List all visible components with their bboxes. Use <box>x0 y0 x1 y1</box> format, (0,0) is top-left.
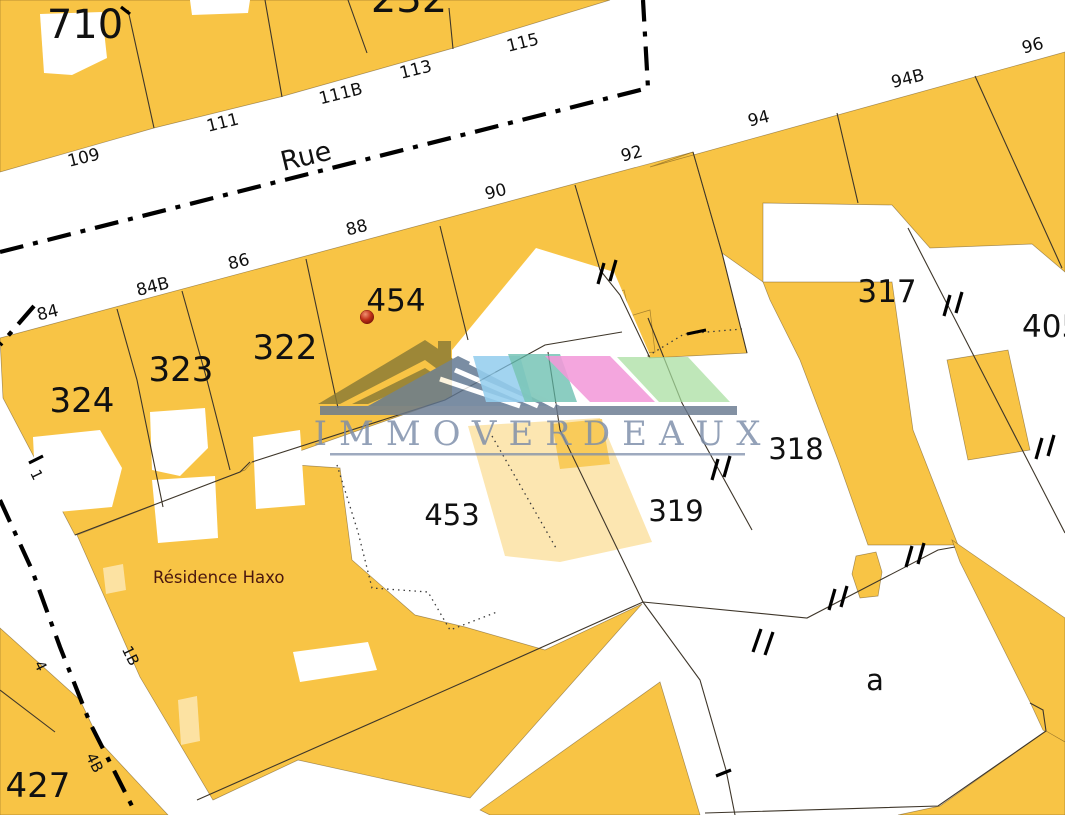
building-405 <box>947 350 1030 460</box>
watermark-text: IMMOVERDEAUX <box>314 414 773 454</box>
house-number-86: 86 <box>226 250 252 275</box>
parcel-block-right-street-corner <box>898 731 1065 815</box>
house-number-94b: 94B <box>889 65 926 92</box>
parcel-label-324: 324 <box>50 381 115 421</box>
parcel-label-427: 427 <box>6 766 71 806</box>
house-number-84: 84 <box>35 301 61 326</box>
parcel-label-232: 232 <box>371 0 447 22</box>
parcel-label-323: 323 <box>149 350 214 390</box>
house-number-96: 96 <box>1020 34 1046 59</box>
parcel-label-454: 454 <box>366 283 425 319</box>
parcel-block-rear-band <box>763 282 958 545</box>
residence-name-label: Résidence Haxo <box>153 568 284 587</box>
house-number-94: 94 <box>746 107 772 132</box>
house-number-115: 115 <box>505 30 541 57</box>
map-canvas[interactable]: 710 232 Rue 109 111 111B 113 115 84 84B … <box>0 0 1065 815</box>
parcel-label-318: 318 <box>768 432 823 466</box>
house-number-88: 88 <box>344 216 370 241</box>
parcel-block-right-street-upper <box>952 540 1065 742</box>
logo-underline <box>330 453 745 456</box>
parcel-label-453: 453 <box>424 498 479 532</box>
parcel-label-317: 317 <box>857 274 916 310</box>
house-number-90: 90 <box>483 180 509 205</box>
cadastral-map[interactable]: 710 232 Rue 109 111 111B 113 115 84 84B … <box>0 0 1065 815</box>
parcel-label-405: 405 <box>1022 309 1065 345</box>
parcel-label-319: 319 <box>648 494 703 528</box>
parcel-label-a: a <box>866 663 884 697</box>
parcel-label-710: 710 <box>47 2 123 48</box>
parcel-label-322: 322 <box>253 328 318 368</box>
house-number-92: 92 <box>619 142 645 167</box>
selected-parcel-marker[interactable] <box>360 310 374 324</box>
street-name-label: Rue <box>277 136 334 178</box>
building-blob-a <box>852 552 882 598</box>
